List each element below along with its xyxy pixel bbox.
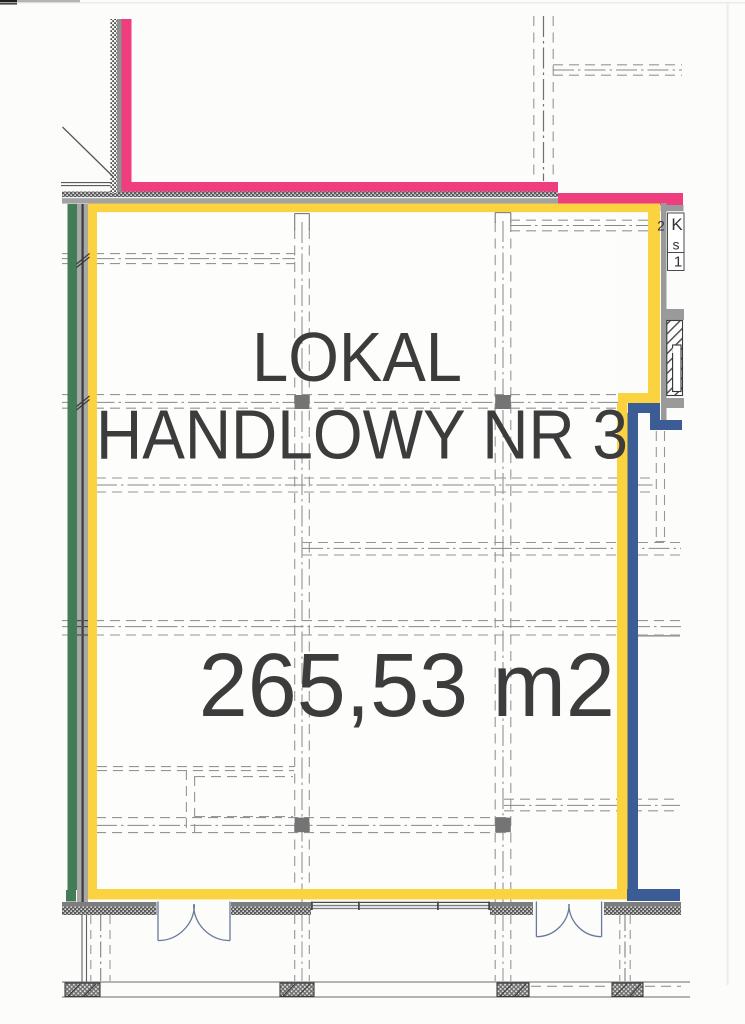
svg-text:LOKAL: LOKAL [252, 318, 462, 396]
svg-text:1: 1 [674, 254, 682, 271]
svg-text:K: K [671, 215, 683, 234]
svg-text:2: 2 [657, 219, 665, 234]
svg-text:s: s [673, 237, 680, 253]
svg-text:265,53 m2: 265,53 m2 [199, 636, 615, 736]
svg-text:HANDLOWY NR 3: HANDLOWY NR 3 [96, 396, 628, 474]
